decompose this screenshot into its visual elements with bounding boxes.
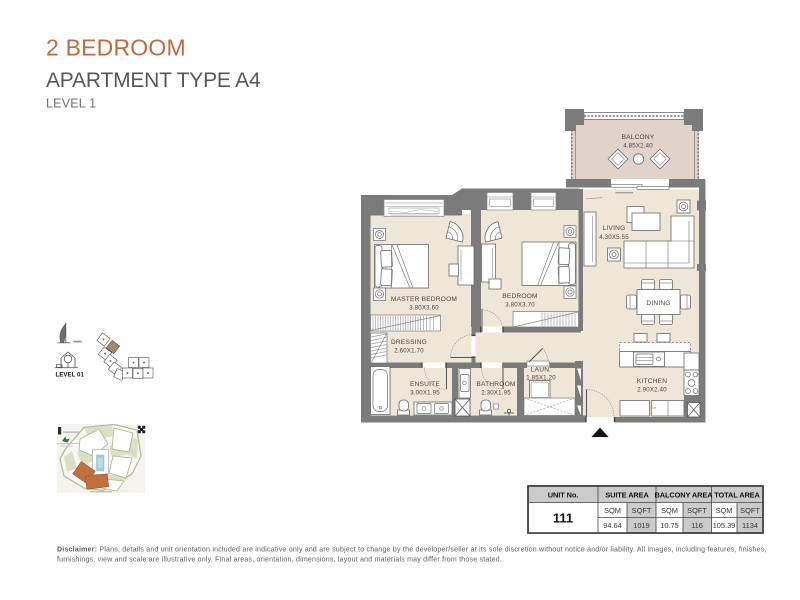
svg-text:94.64: 94.64 [603, 521, 622, 530]
svg-text:111: 111 [553, 511, 573, 526]
svg-text:SUITE AREA: SUITE AREA [605, 491, 649, 500]
svg-text:2.90X2.40: 2.90X2.40 [637, 387, 667, 394]
svg-text:MASTER BEDROOM: MASTER BEDROOM [391, 296, 457, 303]
svg-text:105.39: 105.39 [713, 521, 736, 530]
svg-text:LAUN.: LAUN. [531, 367, 551, 374]
svg-text:KITCHEN: KITCHEN [637, 378, 667, 385]
svg-text:4.85X2.40: 4.85X2.40 [623, 143, 653, 150]
svg-text:BEDROOM: BEDROOM [502, 293, 537, 300]
svg-text:2.30X1.95: 2.30X1.95 [481, 390, 511, 397]
svg-text:10.75: 10.75 [660, 521, 679, 530]
svg-text:DINING: DINING [646, 300, 670, 307]
svg-text:SQFT: SQFT [740, 506, 760, 515]
svg-text:1019: 1019 [633, 521, 649, 530]
svg-text:3.00X1.95: 3.00X1.95 [410, 390, 440, 397]
svg-text:BALCONY AREA: BALCONY AREA [655, 491, 714, 500]
svg-text:LEVEL 1: LEVEL 1 [46, 97, 96, 111]
svg-text:furnishings, view and scale ar: furnishings, view and scale are illustra… [57, 557, 502, 564]
svg-text:SQM: SQM [716, 506, 733, 515]
svg-text:3.80X3.70: 3.80X3.70 [505, 302, 535, 309]
svg-text:116: 116 [691, 521, 703, 530]
svg-text:Disclaimer: Plans, details and: Disclaimer: Plans, details and unit orie… [57, 547, 766, 554]
svg-text:2 BEDROOM: 2 BEDROOM [46, 35, 186, 61]
svg-text:BALCONY: BALCONY [622, 134, 655, 141]
svg-text:4.30X5.55: 4.30X5.55 [599, 234, 629, 241]
svg-text:3.80X3.60: 3.80X3.60 [409, 305, 439, 312]
svg-text:ENSUITE: ENSUITE [410, 381, 440, 388]
svg-text:DRESSING: DRESSING [391, 339, 427, 346]
svg-text:2.60X1.70: 2.60X1.70 [394, 348, 424, 355]
svg-text:SQFT: SQFT [687, 506, 707, 515]
svg-text:SQFT: SQFT [632, 506, 652, 515]
svg-text:LIVING: LIVING [603, 225, 626, 232]
svg-text:TOTAL AREA: TOTAL AREA [714, 491, 760, 500]
svg-text:1134: 1134 [742, 521, 758, 530]
svg-text:1.85X1.20: 1.85X1.20 [526, 375, 556, 382]
svg-text:SQM: SQM [604, 506, 621, 515]
svg-text:SQM: SQM [661, 506, 678, 515]
svg-text:APARTMENT TYPE A4: APARTMENT TYPE A4 [46, 69, 261, 92]
svg-text:BATHROOM: BATHROOM [476, 381, 515, 388]
svg-text:LEVEL 01: LEVEL 01 [56, 372, 85, 379]
svg-text:UNIT No.: UNIT No. [548, 491, 578, 500]
